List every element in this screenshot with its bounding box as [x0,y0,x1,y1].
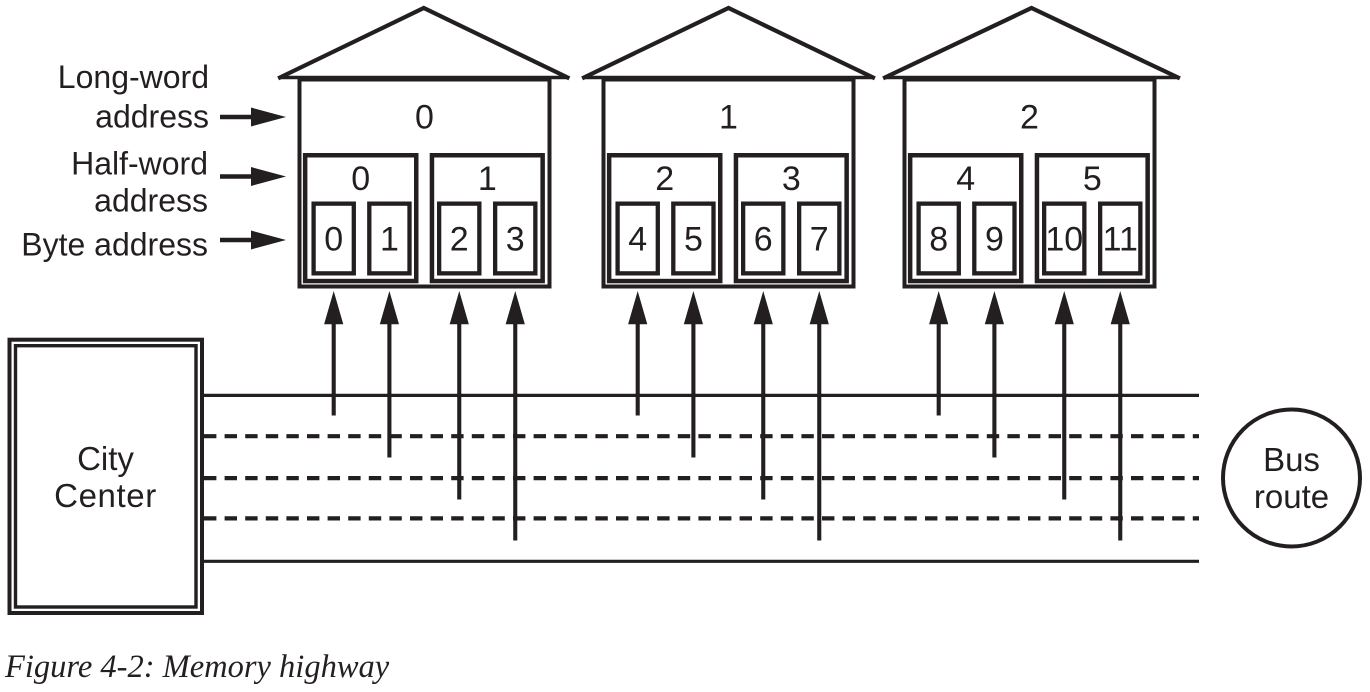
svg-text:2: 2 [450,221,469,259]
svg-text:2: 2 [1020,99,1039,137]
svg-text:Bus: Bus [1263,441,1320,478]
svg-text:7: 7 [810,221,829,259]
svg-text:4: 4 [628,221,647,259]
svg-text:8: 8 [929,221,948,259]
svg-text:10: 10 [1045,221,1083,259]
svg-text:0: 0 [351,160,370,198]
svg-text:5: 5 [684,221,703,259]
svg-text:9: 9 [985,221,1004,259]
svg-text:Long-word: Long-word [58,59,209,95]
svg-text:address: address [95,99,209,135]
svg-text:Byte address: Byte address [21,227,208,263]
svg-text:address: address [94,183,208,219]
svg-text:City: City [77,440,134,477]
svg-text:Figure 4-2: Memory highway: Figure 4-2: Memory highway [4,649,390,685]
svg-text:1: 1 [478,160,497,198]
svg-text:11: 11 [1103,221,1138,259]
svg-text:Center: Center [54,477,157,514]
svg-text:Half-word: Half-word [71,145,208,181]
svg-text:4: 4 [956,160,975,198]
svg-text:6: 6 [754,221,773,259]
svg-text:1: 1 [380,221,399,259]
svg-text:0: 0 [415,99,434,137]
svg-text:1: 1 [719,99,738,137]
svg-text:0: 0 [324,221,343,259]
svg-text:2: 2 [655,160,674,198]
svg-text:3: 3 [506,221,525,259]
svg-text:route: route [1254,478,1329,515]
svg-text:5: 5 [1083,160,1102,198]
svg-text:3: 3 [782,160,801,198]
